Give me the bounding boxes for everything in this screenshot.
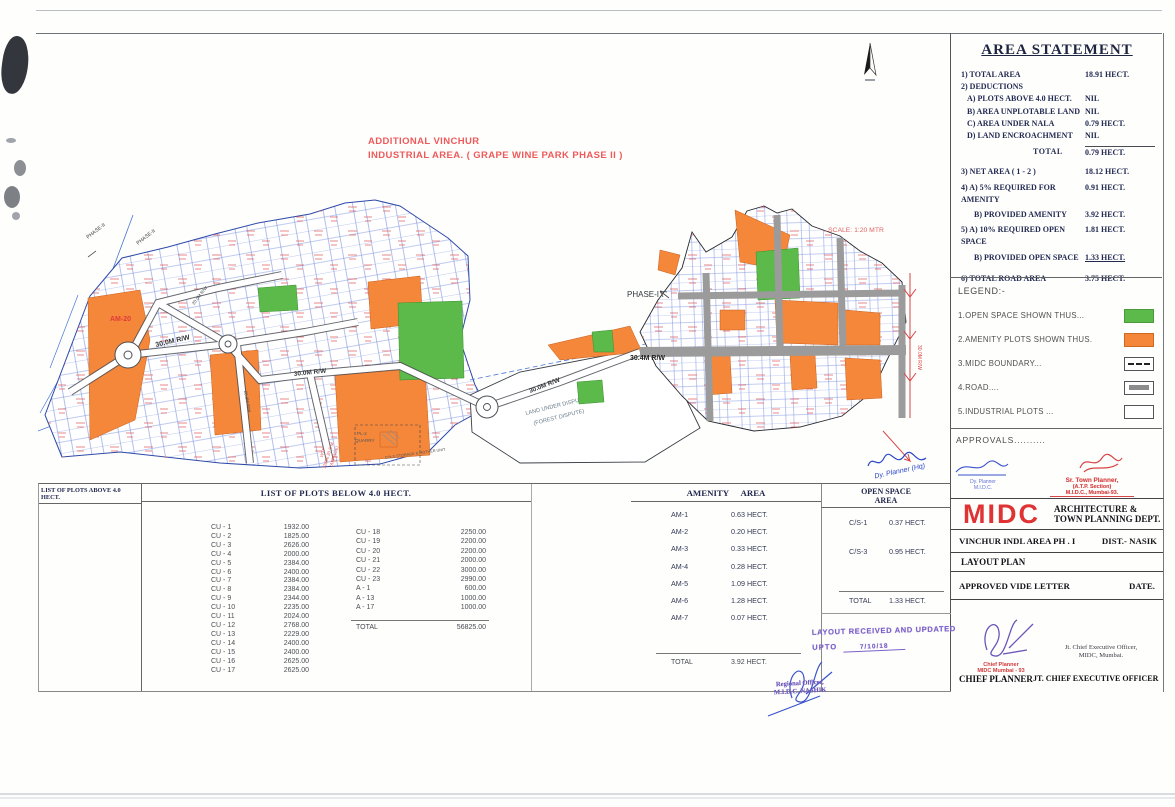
plot-row: CU - 92344.00 bbox=[211, 595, 309, 604]
statement-value: 1.33 HECT. bbox=[1085, 252, 1155, 264]
jt-ceo-title: JT. CHIEF EXECUTIVE OFFICER bbox=[1033, 674, 1158, 683]
legend-item-amenity: 2.AMENITY PLOTS SHOWN THUS. bbox=[958, 332, 1154, 347]
statement-label: B) AREA UNPLOTABLE LAND bbox=[961, 106, 1085, 118]
plot-row: CU - 232990.00 bbox=[356, 575, 486, 584]
amenity-row: AM-30.33 HECT. bbox=[631, 544, 821, 561]
statement-value: 0.91 HECT. bbox=[1085, 182, 1155, 206]
plot-row: A - 131000.00 bbox=[356, 594, 486, 603]
layout-received-stamp: LAYOUT RECEIVED AND UPDATED UPTO7/10/18 bbox=[812, 624, 957, 653]
statement-value: NIL bbox=[1085, 93, 1155, 105]
statement-label: TOTAL bbox=[961, 146, 1085, 159]
district-name: DIST.- NASIK bbox=[1102, 536, 1157, 546]
sr-town-planner-stamp: Sr. Town Planner, (A.T.P. Section) M.I.D… bbox=[1050, 477, 1134, 497]
statement-label: B) PROVIDED AMENITY bbox=[961, 209, 1085, 221]
am20-label: AM-20 bbox=[110, 316, 131, 323]
area-statement: 1) TOTAL AREA18.91 HECT. 2) DEDUCTIONS A… bbox=[951, 69, 1163, 285]
title-block: MIDC ARCHITECTURE & TOWN PLANNING DEPT. … bbox=[950, 498, 1164, 692]
svg-text:PHASE-II: PHASE-II bbox=[86, 222, 107, 240]
plot-row: CU - 11932.00 bbox=[211, 524, 309, 533]
plot-row: CU - 142400.00 bbox=[211, 640, 309, 649]
plot-row: CU - 52384.00 bbox=[211, 560, 309, 569]
open-space-swatch bbox=[1124, 309, 1154, 323]
scan-artifact bbox=[14, 160, 26, 176]
dy-planner-stamp: Dy. Planner M.I.D.C. bbox=[955, 479, 1011, 491]
legend-label: 5.INDUSTRIAL PLOTS ... bbox=[958, 407, 1124, 416]
signature-dy-planner bbox=[952, 458, 1012, 478]
total-rule bbox=[839, 591, 944, 592]
statement-value: 18.12 HECT. bbox=[1085, 166, 1155, 178]
scan-artifact bbox=[12, 212, 20, 220]
plot-row: CU - 32626.00 bbox=[211, 542, 309, 551]
title-block-signatures: Chief Planner MIDC Mumbai - 93 CHIEF PLA… bbox=[951, 600, 1163, 692]
scan-line bbox=[0, 797, 1175, 799]
plot-row: CU - 162625.00 bbox=[211, 658, 309, 667]
date-label: DATE. bbox=[1129, 581, 1155, 591]
total-rule bbox=[351, 620, 489, 621]
statement-label: 4) A) 5% REQUIRED FOR AMENITY bbox=[961, 182, 1085, 206]
open-space-row: C/S-10.37 HECT. bbox=[821, 518, 947, 527]
plot-row: CU - 82384.00 bbox=[211, 586, 309, 595]
plot-row: CU - 72384.00 bbox=[211, 577, 309, 586]
legend-title: LEGEND:- bbox=[958, 286, 1162, 296]
sheet-border bbox=[36, 10, 1162, 11]
open-space-total-row: TOTAL1.33 HECT. bbox=[821, 596, 947, 605]
amenity-row: AM-10.63 HECT. bbox=[631, 510, 821, 527]
box-rule bbox=[821, 613, 951, 614]
industrial-area-name: VINCHUR INDL AREA PH . I bbox=[959, 536, 1102, 546]
statement-label: A) PLOTS ABOVE 4.0 HECT. bbox=[961, 93, 1085, 105]
plot-row: CU - 172625.00 bbox=[211, 667, 309, 676]
industrial-plot-swatch bbox=[1124, 405, 1154, 419]
scan-artifact bbox=[0, 34, 32, 95]
plot-row: CU - 202200.00 bbox=[356, 547, 486, 556]
statement-value: NIL bbox=[1085, 106, 1155, 118]
road-swatch bbox=[1124, 381, 1154, 395]
statement-label: 3) NET AREA ( 1 - 2 ) bbox=[961, 166, 1085, 178]
svg-text:PL-2: PL-2 bbox=[357, 431, 367, 436]
plots-below-box: LIST OF PLOTS BELOW 4.0 HECT. CU - 11932… bbox=[141, 484, 532, 691]
statement-value: 18.91 HECT. bbox=[1085, 69, 1155, 81]
plots-below-right-column: CU - 182250.00CU - 192200.00CU - 202200.… bbox=[356, 528, 486, 613]
plot-row: CU - 152400.00 bbox=[211, 649, 309, 658]
approvals-title: APPROVALS.......... bbox=[956, 435, 1162, 445]
plot-row: CU - 192200.00 bbox=[356, 537, 486, 546]
chief-planner-stamp: Chief Planner MIDC Mumbai - 93 bbox=[961, 662, 1041, 674]
plots-above-box: LIST OF PLOTS ABOVE 4.0 HECT. bbox=[39, 484, 142, 691]
legend-label: 2.AMENITY PLOTS SHOWN THUS. bbox=[958, 335, 1124, 344]
statement-label: D) LAND ENCROACHMENT bbox=[961, 130, 1085, 142]
scale-label: SCALE: 1:20 MTR bbox=[828, 227, 884, 234]
svg-text:QUARRY: QUARRY bbox=[355, 438, 375, 443]
scan-line bbox=[0, 793, 1175, 795]
legend-label: 1.OPEN SPACE SHOWN THUS... bbox=[958, 311, 1124, 320]
signature-chief-planner bbox=[969, 610, 1039, 665]
statement-label: 5) A) 10% REQUIRED OPEN SPACE bbox=[961, 224, 1085, 248]
legend-item-road: 4.ROAD.... bbox=[958, 380, 1154, 395]
statement-value: 0.79 HECT. bbox=[1085, 146, 1155, 159]
statement-label: 1) TOTAL AREA bbox=[961, 69, 1085, 81]
midc-logo: MIDC bbox=[963, 499, 1040, 530]
road-label: 30.4M R/W bbox=[630, 355, 665, 362]
amenity-row: AM-61.28 HECT. bbox=[631, 596, 821, 613]
plots-total-row: TOTAL 56825.00 bbox=[356, 624, 486, 631]
signature-sr-town-planner bbox=[1072, 450, 1128, 476]
plot-row: A - 171000.00 bbox=[356, 603, 486, 612]
open-space-title: OPEN SPACE AREA bbox=[821, 484, 951, 508]
north-arrow bbox=[864, 43, 876, 81]
legend-item-industrial: 5.INDUSTRIAL PLOTS ... bbox=[958, 404, 1154, 419]
plots-below-left-column: CU - 11932.00CU - 21825.00CU - 32626.00C… bbox=[211, 524, 309, 675]
plot-row: CU - 122768.00 bbox=[211, 622, 309, 631]
scan-artifact bbox=[4, 186, 20, 208]
midc-boundary-swatch bbox=[1124, 357, 1154, 371]
scan-artifact bbox=[6, 138, 16, 143]
statement-value: 0.79 HECT. bbox=[1085, 118, 1155, 130]
map-title-line2: INDUSTRIAL AREA. ( GRAPE WINE PARK PHASE… bbox=[368, 150, 623, 161]
statement-label: 2) DEDUCTIONS bbox=[961, 81, 1085, 93]
amenity-row: AM-40.28 HECT. bbox=[631, 562, 821, 579]
svg-text:PHASE-II: PHASE-II bbox=[136, 228, 157, 246]
chief-planner-title: CHIEF PLANNER bbox=[959, 674, 1033, 684]
plots-above-title: LIST OF PLOTS ABOVE 4.0 HECT. bbox=[39, 484, 141, 504]
open-space-row: C/S-30.95 HECT. bbox=[821, 547, 947, 556]
statement-value: 1.81 HECT. bbox=[1085, 224, 1155, 248]
drawing-name: LAYOUT PLAN bbox=[961, 557, 1025, 567]
legend: LEGEND:- 1.OPEN SPACE SHOWN THUS... 2.AM… bbox=[950, 277, 1162, 445]
amenity-rows: AM-10.63 HECT.AM-20.20 HECT.AM-30.33 HEC… bbox=[631, 510, 821, 630]
plot-row: CU - 132229.00 bbox=[211, 631, 309, 640]
legend-item-open-space: 1.OPEN SPACE SHOWN THUS... bbox=[958, 308, 1154, 323]
layout-map: PHASE LINE PHASE-II PHASE-II LAND UNDER … bbox=[38, 33, 950, 483]
plot-row: CU - 42000.00 bbox=[211, 551, 309, 560]
plots-below-title: LIST OF PLOTS BELOW 4.0 HECT. bbox=[141, 484, 531, 502]
plot-row: CU - 21825.00 bbox=[211, 533, 309, 542]
svg-text:PHASE-I: PHASE-I bbox=[627, 290, 659, 299]
plot-row: CU - 112024.00 bbox=[211, 613, 309, 622]
statement-value: NIL bbox=[1085, 130, 1155, 142]
statement-value bbox=[1085, 81, 1155, 93]
approved-vide-letter-label: APPROVED VIDE LETTER bbox=[959, 581, 1129, 591]
statement-value: 3.92 HECT. bbox=[1085, 209, 1155, 221]
plot-row: CU - 212000.00 bbox=[356, 556, 486, 565]
legend-label: 3.MIDC BOUNDARY... bbox=[958, 359, 1124, 368]
plot-row: CU - 62400.00 bbox=[211, 569, 309, 578]
department-name: ARCHITECTURE & TOWN PLANNING DEPT. bbox=[1054, 504, 1160, 525]
plot-row: CU - 102235.00 bbox=[211, 604, 309, 613]
amenity-swatch bbox=[1124, 333, 1154, 347]
legend-item-boundary: 3.MIDC BOUNDARY... bbox=[958, 356, 1154, 371]
amenity-row: AM-51.09 HECT. bbox=[631, 579, 821, 596]
legend-label: 4.ROAD.... bbox=[958, 383, 1124, 392]
amenity-row: AM-20.20 HECT. bbox=[631, 527, 821, 544]
amenity-row: AM-70.07 HECT. bbox=[631, 613, 821, 630]
jt-ceo-note: Jt. Chief Executive Officer, MIDC, Mumba… bbox=[1043, 644, 1159, 660]
statement-label: B) PROVIDED OPEN SPACE bbox=[961, 252, 1085, 264]
plot-row: CU - 182250.00 bbox=[356, 528, 486, 537]
map-title-line1: ADDITIONAL VINCHUR bbox=[368, 136, 480, 147]
amenity-title: AMENITY AREA bbox=[631, 484, 821, 502]
road-label: 30.0M R/W bbox=[916, 345, 922, 370]
area-statement-title: AREA STATEMENT bbox=[951, 42, 1163, 59]
layout-plan-sheet: { "map": { "title_line1": "ADDITIONAL VI… bbox=[0, 0, 1175, 807]
plot-row: A - 1600.00 bbox=[356, 584, 486, 593]
statement-label: C) AREA UNDER NALA bbox=[961, 118, 1085, 130]
plot-row: CU - 223000.00 bbox=[356, 566, 486, 575]
